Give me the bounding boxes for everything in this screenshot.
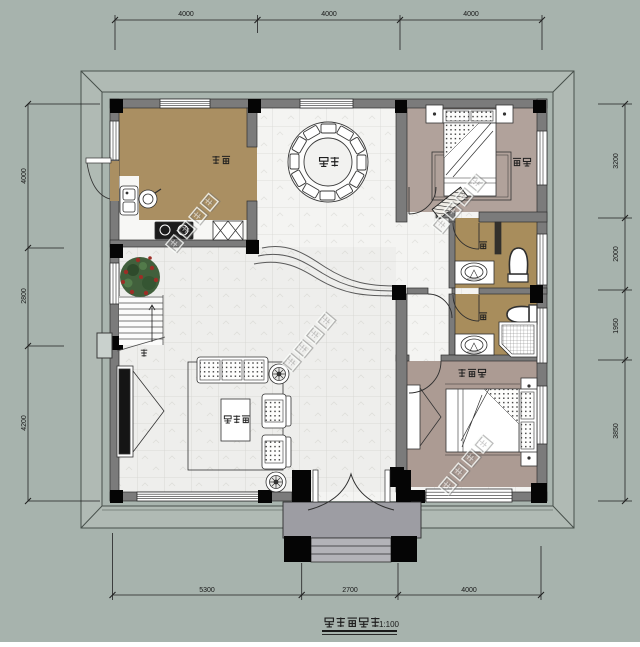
- svg-text:4000: 4000: [178, 11, 194, 18]
- svg-text:2800: 2800: [21, 288, 28, 304]
- svg-text:3200: 3200: [613, 153, 620, 169]
- svg-text:4000: 4000: [321, 11, 337, 18]
- svg-text:4000: 4000: [461, 587, 477, 594]
- svg-text:2700: 2700: [342, 587, 358, 594]
- svg-text:4000: 4000: [21, 168, 28, 184]
- svg-text:1950: 1950: [613, 318, 620, 334]
- svg-text:1:100: 1:100: [379, 620, 400, 629]
- svg-text:4000: 4000: [463, 11, 479, 18]
- svg-text:4200: 4200: [21, 415, 28, 431]
- svg-text:3850: 3850: [613, 423, 620, 439]
- svg-text:2000: 2000: [613, 246, 620, 262]
- svg-text:5300: 5300: [199, 587, 215, 594]
